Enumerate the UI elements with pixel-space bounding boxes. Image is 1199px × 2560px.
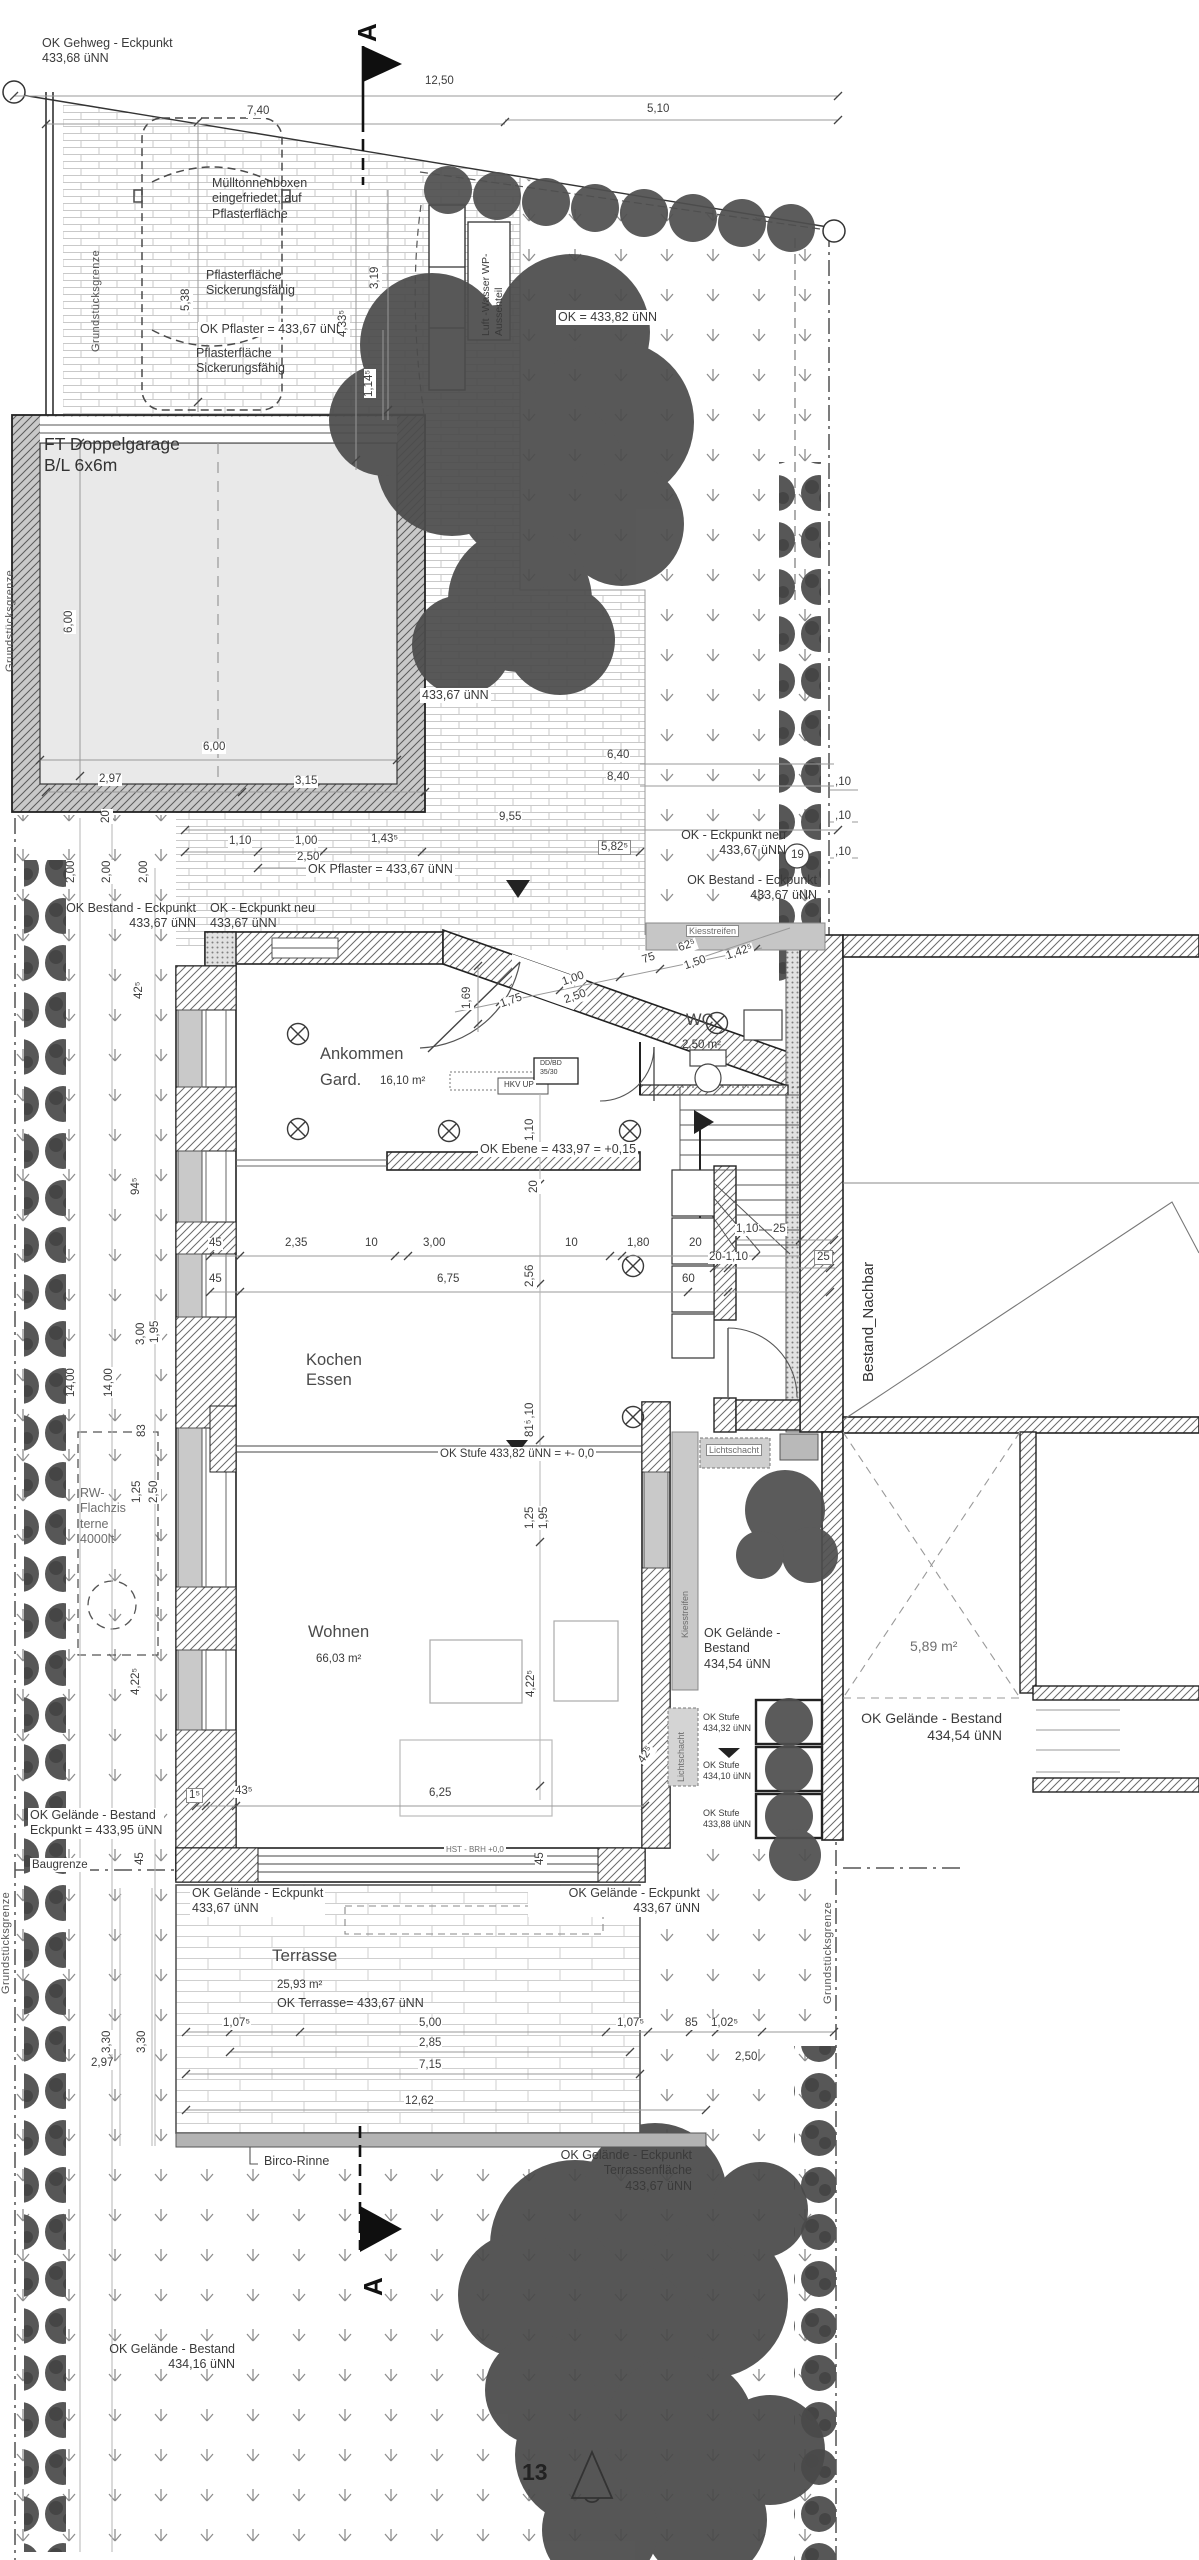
dim-3-00: 3,00	[422, 1238, 446, 1250]
dim-2-35: 2,35	[284, 1238, 308, 1250]
dim-20-1-10: 20-1,10	[708, 1252, 749, 1264]
dim-45-b: 45	[208, 1274, 223, 1286]
dim-25-stair: 25	[772, 1224, 787, 1236]
dim-6-40: 6,40	[606, 750, 630, 762]
label-pflasterflaeche-1: Pflasterfläche Sickerungsfähig	[206, 268, 295, 299]
label-ok-eckpunkt-neu-links: OK - Eckpunkt neu 433,67 üNN	[210, 901, 315, 932]
label-lichtschacht-1: Lichtschacht	[706, 1444, 762, 1456]
dim-45-sued-rechts: 45	[535, 1851, 547, 1866]
dim-1-14-5: 1,14⁵	[364, 369, 376, 398]
room-kochen-essen: Kochen Essen	[306, 1350, 362, 1390]
label-ok-gelaende-terrassenflaeche: OK Gelände - Eckpunkt Terrassenfläche 43…	[545, 2148, 692, 2194]
dim-12-50: 12,50	[424, 76, 455, 88]
dim-2-97-garage: 2,97	[98, 774, 122, 786]
room-garderobe-area: 16,10 m²	[380, 1074, 425, 1088]
room-wohnen: Wohnen	[308, 1622, 369, 1642]
dim-45-a: 45	[208, 1238, 223, 1250]
dim-25-box: 25	[814, 1250, 833, 1265]
room-ankommen: Ankommen	[320, 1044, 403, 1064]
room-garderobe: Gard.	[320, 1070, 361, 1090]
dim-1-07-5-b: 1,07⁵	[616, 2018, 645, 2030]
label-ok-bestand-eckpunkt-links: OK Bestand - Eckpunkt 433,67 üNN	[28, 901, 196, 932]
label-ok-pflaster-1: OK Pflaster = 433,67 üNN	[198, 322, 347, 337]
label-ok-stufe-433-88: OK Stufe 433,88 üNN	[701, 1808, 753, 1830]
label-hst-brh: HST - BRH +0,0	[444, 1845, 506, 1855]
dim-6-25: 6,25	[428, 1788, 452, 1800]
label-rw-flachzisterne: RW- Flachzis terne 4000lt	[80, 1486, 126, 1547]
dim-8-40: 8,40	[606, 772, 630, 784]
dim-7-40: 7,40	[246, 106, 270, 118]
label-bestand-nachbar: Bestand_Nachbar	[860, 1262, 878, 1382]
neighbour-building	[843, 935, 1199, 1792]
dim-60: 60	[681, 1274, 696, 1286]
label-birco-rinne: Birco-Rinne	[262, 2154, 331, 2169]
dim-4-22-5-rechts: 4,22⁵	[526, 1669, 538, 1698]
dim-2-50-terr: 2,50	[734, 2052, 758, 2064]
dim-2-00-b: 2,00	[102, 860, 114, 884]
dim-1-95-links: 1,95	[150, 1320, 162, 1344]
site-plan: OK Gehweg - Eckpunkt 433,68 üNN A Müllto…	[0, 0, 1199, 2560]
dim-5-82-5: 5,82⁵	[598, 840, 631, 855]
dim-1-25-links: 1,25	[132, 1480, 144, 1504]
label-ok-bestand-eckpunkt-rechts: OK Bestand - Eckpunkt 433,67 üNN	[653, 873, 817, 904]
tree-tag-13: 13	[522, 2458, 548, 2486]
dim-10-k2: 10	[564, 1238, 579, 1250]
dim-1-69: 1,69	[462, 986, 474, 1010]
label-kiesstreifen-vertical: Kiesstreifen	[680, 1591, 691, 1638]
dim-2-50-a: 2,50	[296, 852, 320, 864]
dim-1-10-entry: 1,10	[525, 1118, 537, 1142]
house-walls	[176, 930, 843, 1882]
label-ok-gelaende-bestand-2: OK Gelände - Bestand 434,54 üNN	[852, 1710, 1002, 1744]
label-ok-stufe-434-32: OK Stufe 434,32 üNN	[701, 1712, 753, 1734]
dim-94-5: 94⁵	[131, 1176, 143, 1196]
dim-20-k: 20	[688, 1238, 703, 1250]
dim-1-5: 1⁵	[186, 1788, 203, 1803]
label-grundstuecksgrenze-2: Grundstücksgrenze	[4, 570, 17, 672]
dim-4-33-5: 4,33⁵	[338, 309, 350, 338]
dim-3-15: 3,15	[294, 776, 318, 788]
dim-1-00: 1,00	[294, 836, 318, 848]
label-ok-gelaende-bestand-unten: OK Gelände - Bestand 434,16 üNN	[45, 2342, 235, 2373]
dim-2-00-a: 2,00	[66, 860, 78, 884]
dim-5-10: 5,10	[646, 104, 670, 116]
label-pflasterflaeche-2: Pflasterfläche Sickerungsfähig	[196, 346, 285, 377]
label-area-5-89: 5,89 m²	[910, 1638, 957, 1655]
dim-3-30-a: 3,30	[102, 2030, 114, 2054]
dim-10-a: ,10	[834, 777, 852, 789]
dim-6-75: 6,75	[436, 1274, 460, 1286]
dim-3-19: 3,19	[370, 266, 382, 290]
dim-1-95-wohnen: 1,95	[539, 1506, 551, 1530]
dim-2-00-c: 2,00	[139, 860, 151, 884]
dim-12-62: 12,62	[404, 2096, 435, 2108]
label-ok-gelaende-eckpunkt-1: OK Gelände - Eckpunkt 433,67 üNN	[190, 1886, 325, 1917]
dim-3-00-links: 3,00	[136, 1322, 148, 1346]
label-garage: FT Doppelgarage B/L 6x6m	[44, 434, 180, 477]
label-ok-gelaende-eckpunkt-2: OK Gelände - Eckpunkt 433,67 üNN	[528, 1886, 702, 1917]
label-lichtschacht-2: Lichtschacht	[676, 1732, 687, 1782]
dim-1-10-stair: 1,10	[735, 1224, 759, 1236]
label-muelltonnenboxen: Mülltonnenboxen eingefriedet, auf Pflast…	[212, 176, 307, 222]
dim-3-30-b: 3,30	[137, 2030, 149, 2054]
dim-81-5: 81⁵	[525, 1418, 537, 1438]
room-wohnen-area: 66,03 m²	[316, 1652, 361, 1666]
dim-1-07-5-a: 1,07⁵	[222, 2018, 251, 2030]
dim-14-00-a: 14,00	[66, 1367, 78, 1398]
label-ok-gehweg-eckpunkt: OK Gehweg - Eckpunkt 433,68 üNN	[42, 36, 173, 67]
dim-2-56: 2,56	[525, 1264, 537, 1288]
label-grundstuecksgrenze-1: Grundstücksgrenze	[90, 250, 103, 352]
dim-7-15: 7,15	[418, 2060, 442, 2072]
section-marker-a-top: A	[352, 23, 384, 42]
dim-2-97-terr: 2,97	[90, 2058, 114, 2070]
label-kiesstreifen-top: Kiesstreifen	[686, 925, 739, 937]
dim-1-25-wohnen: 1,25	[525, 1506, 537, 1530]
dim-9-55: 9,55	[498, 812, 522, 824]
room-wc: WC	[686, 1010, 714, 1030]
dim-43-5: 43⁵	[234, 1786, 254, 1798]
label-baugrenze: Baugrenze	[30, 1858, 90, 1872]
label-hkv-up: HKV UP	[502, 1080, 536, 1090]
dim-garage-breite: 6,00	[202, 742, 226, 754]
dim-20-kochen: 20	[529, 1179, 541, 1194]
dim-83: 83	[137, 1423, 149, 1438]
dim-1-10-a: 1,10	[228, 836, 252, 848]
section-marker-a-bottom: A	[358, 2277, 390, 2296]
dim-20-garage: 20	[101, 809, 113, 824]
label-grundstuecksgrenze-rechts: Grundstücksgrenze	[822, 1902, 835, 2004]
dim-1-02-5: 1,02⁵	[710, 2018, 739, 2030]
dim-1-80: 1,80	[626, 1238, 650, 1250]
dim-5-38: 5,38	[181, 288, 193, 312]
label-terrasse-area: 25,93 m²	[277, 1978, 322, 1992]
label-ok-433-82: OK = 433,82 üNN	[556, 310, 659, 325]
label-ok-gelaende-eckpunkt-433-95: OK Gelände - Bestand Eckpunkt = 433,95 ü…	[28, 1808, 164, 1839]
dim-2-85: 2,85	[418, 2038, 442, 2050]
dim-10-k1: 10	[364, 1238, 379, 1250]
label-ok-stufe-434-10: OK Stufe 434,10 üNN	[701, 1760, 753, 1782]
label-grundstuecksgrenze-3: Grundstücksgrenze	[0, 1892, 13, 1994]
label-dd-bd: DD/BD 35/30	[540, 1060, 562, 1077]
label-ok-eckpunkt-neu-rechts: OK - Eckpunkt neu 433,67 üNN	[658, 828, 786, 859]
dim-10-b: ,10	[834, 811, 852, 823]
room-wc-area: 2,50 m²	[682, 1038, 721, 1052]
dim-1-43-5: 1,43⁵	[370, 834, 399, 846]
label-ok-pflaster-2: OK Pflaster = 433,67 üNN	[306, 862, 455, 877]
label-ok-gelaende-bestand-1: OK Gelände - Bestand 434,54 üNN	[702, 1626, 782, 1672]
dim-2-50-links: 2,50	[149, 1480, 161, 1504]
label-ok-stufe-0: OK Stufe 433,82 üNN = +- 0,0	[438, 1447, 596, 1461]
dim-14-00-b: 14,00	[104, 1367, 116, 1398]
dim-45-sued-links: 45	[135, 1851, 147, 1866]
kitchen-cabinets	[672, 1170, 714, 1358]
dim-10-c: ,10	[834, 847, 852, 859]
label-terrasse: Terrasse	[272, 1946, 337, 1967]
dim-4-22-5-links: 4,22⁵	[131, 1667, 143, 1696]
dim-garage-tiefe: 6,00	[64, 610, 76, 634]
label-ok-terrasse: OK Terrasse= 433,67 üNN	[277, 1996, 424, 2011]
survey-point-19: 19	[790, 850, 805, 862]
label-hoehe-433-67: 433,67 üNN	[420, 688, 491, 703]
dim-5-00: 5,00	[418, 2018, 442, 2030]
label-ok-ebene: OK Ebene = 433,97 = +0,15	[478, 1142, 638, 1157]
label-luft-wasser-wp: Luft -Wasser WP- Aussenteil	[480, 254, 506, 336]
dim-85: 85	[684, 2018, 699, 2030]
dim-42-5-links: 42⁵	[134, 980, 146, 1000]
